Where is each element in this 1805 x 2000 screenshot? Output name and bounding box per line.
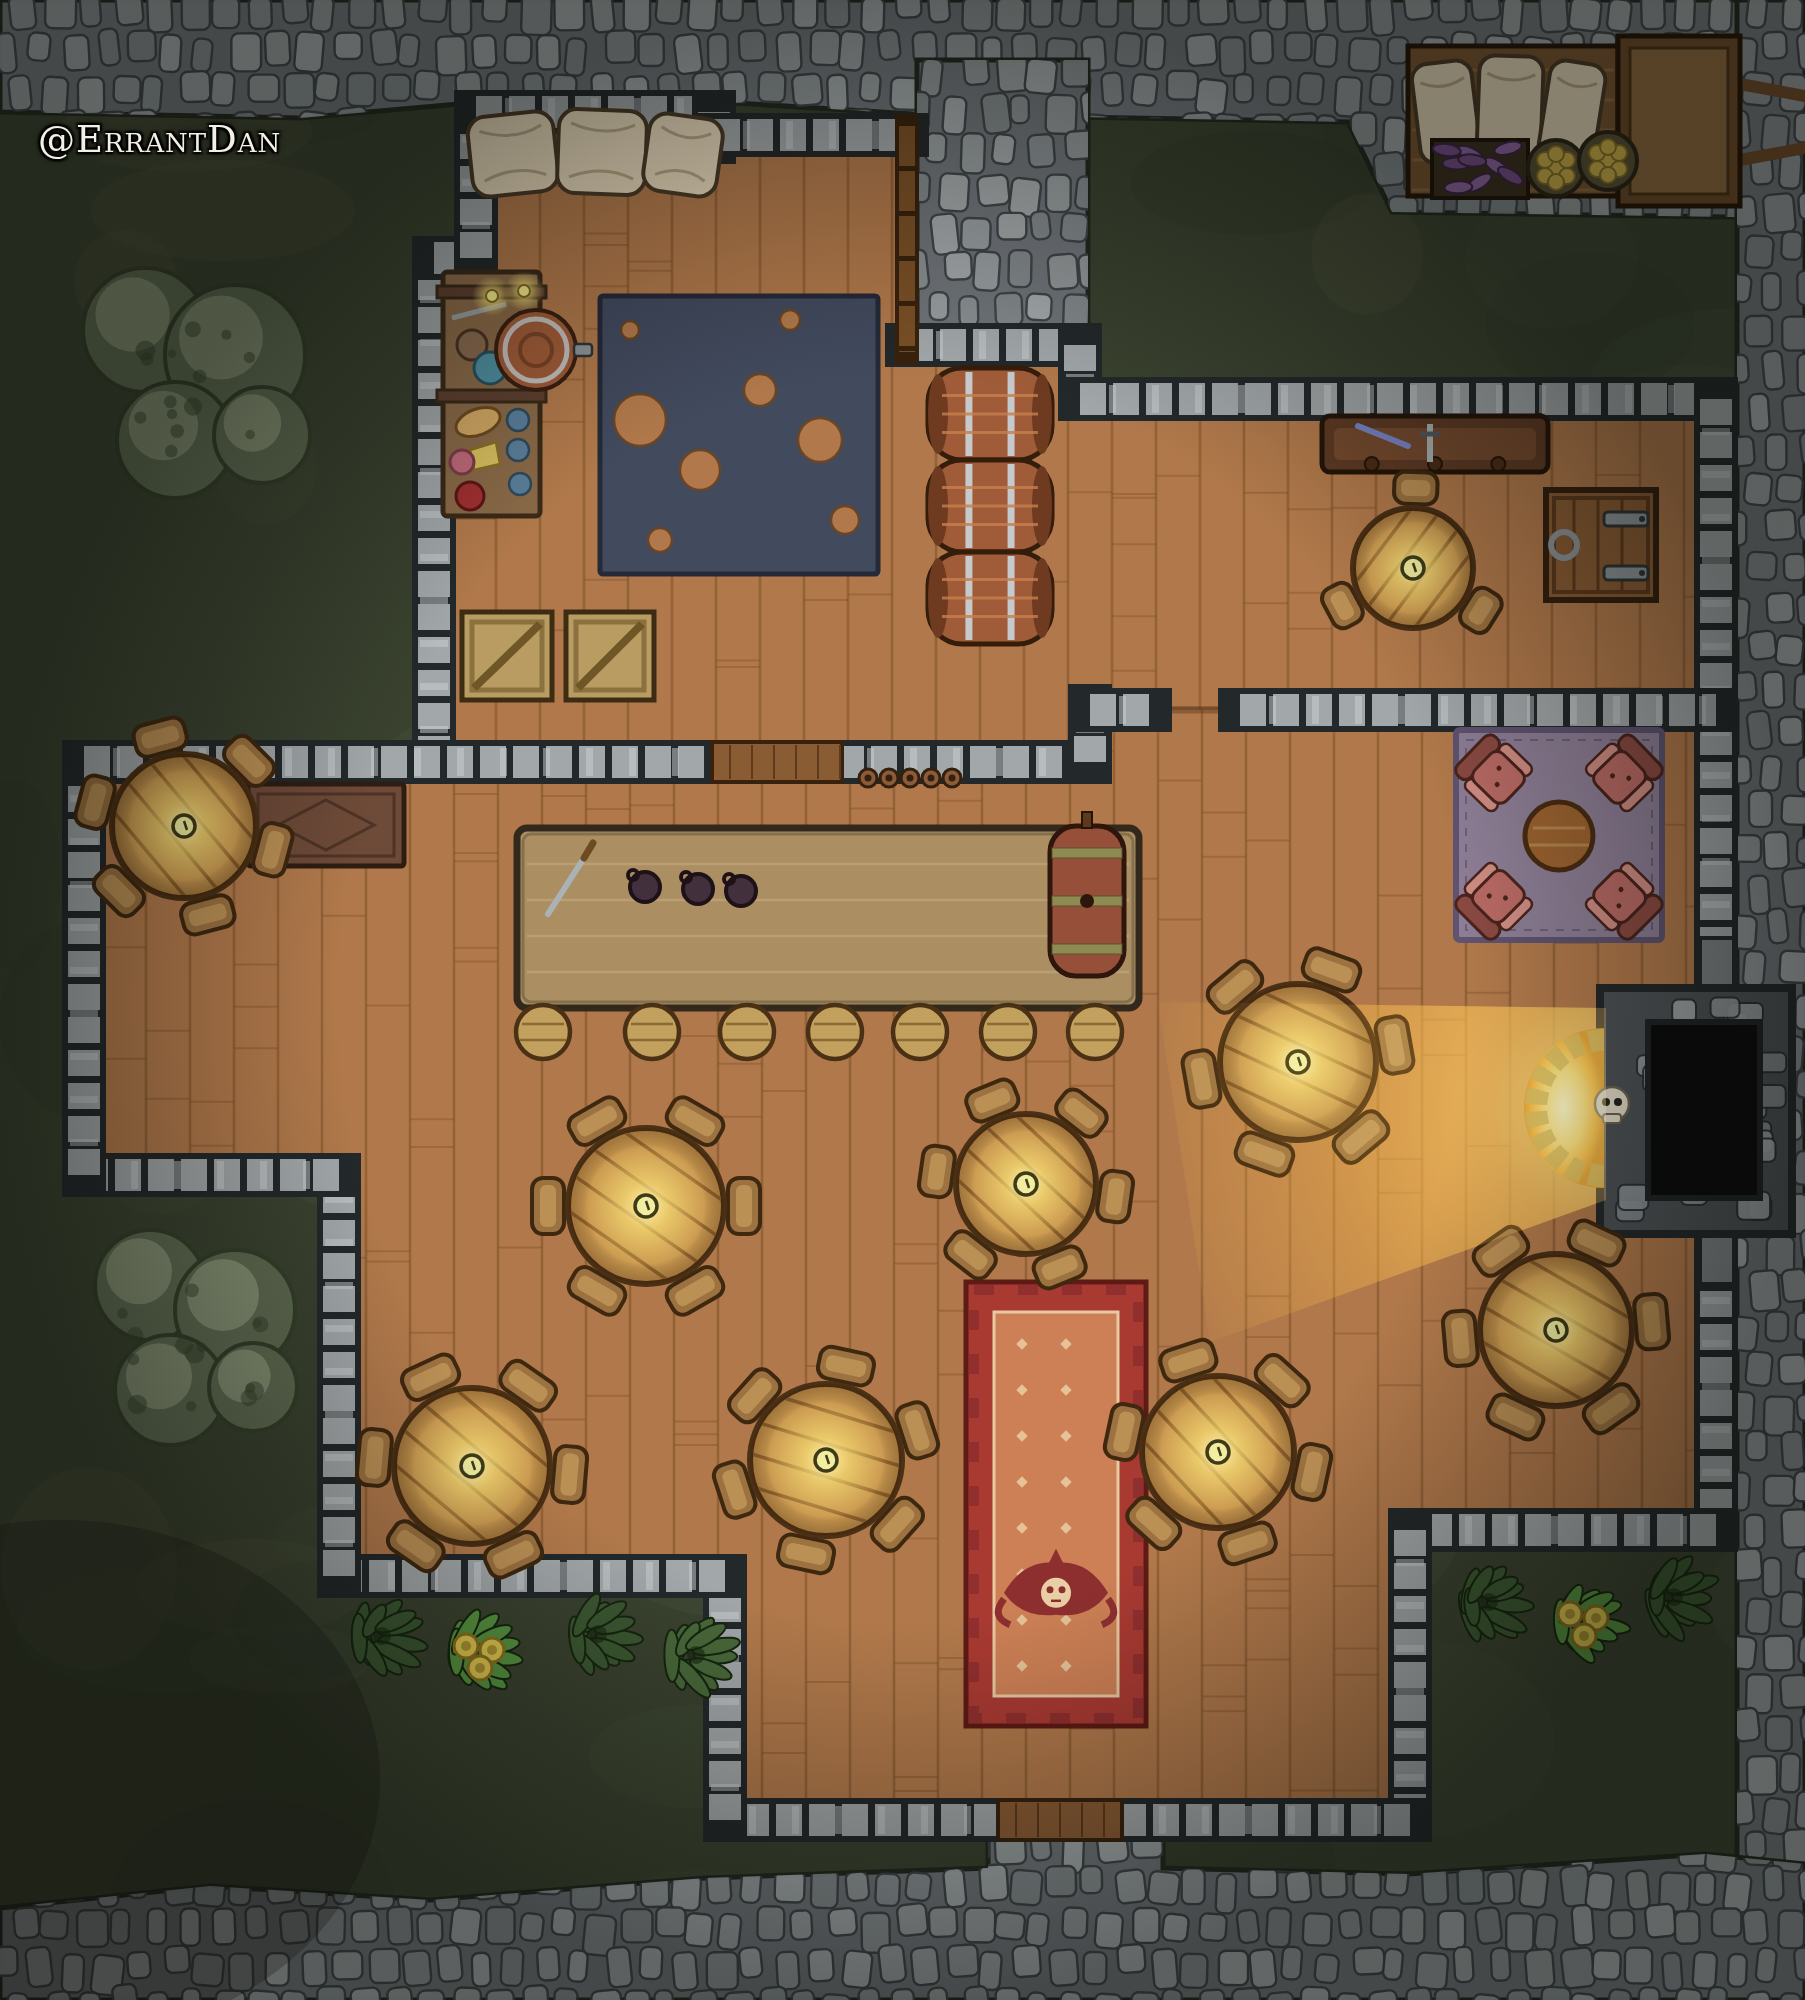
hanging-mug (922, 769, 940, 787)
cobble (1297, 72, 1324, 105)
cobble (1606, 0, 1632, 32)
cobble (930, 213, 960, 256)
cobble (1675, 1911, 1700, 1944)
cobble (1762, 350, 1785, 390)
cobble (1780, 1591, 1804, 1627)
cobble (1219, 1951, 1248, 1986)
cobble (98, 28, 121, 66)
cobble (1723, 1872, 1753, 1913)
table-chair (1633, 1293, 1670, 1350)
cobble (996, 0, 1026, 31)
cobble (1115, 32, 1142, 67)
stacked-keg (928, 552, 1052, 644)
cobble (738, 1947, 763, 1979)
cobble (1746, 1431, 1766, 1460)
bar-stool (625, 1005, 679, 1059)
cobble (1592, 1950, 1621, 1980)
cobble (1539, 0, 1569, 33)
stacked-plate (507, 439, 529, 461)
cobble (959, 296, 978, 326)
cobble (418, 0, 448, 22)
cobble (1782, 394, 1805, 432)
cobble (554, 0, 584, 30)
cobble (1709, 0, 1733, 32)
cobble (1766, 1716, 1792, 1751)
cobble (1762, 273, 1781, 310)
cobble (79, 0, 101, 27)
cobble (842, 1950, 873, 1989)
cobble (1336, 0, 1368, 32)
cobble (991, 133, 1016, 165)
cobble (436, 1944, 463, 1982)
cobble (861, 0, 885, 33)
cobble (811, 1869, 838, 1908)
cobble (472, 1953, 491, 1987)
cobble (537, 1947, 560, 1981)
cobble (1249, 1949, 1277, 1989)
cobble (1534, 1914, 1558, 1951)
cobble (793, 0, 817, 28)
cobble (1180, 1954, 1208, 1989)
cobble (284, 73, 314, 108)
candle (486, 290, 498, 302)
cobble (1182, 1868, 1205, 1904)
cobble (472, 35, 497, 69)
cobble (1388, 37, 1409, 63)
cobble (1169, 0, 1189, 26)
cobble (1133, 1908, 1159, 1943)
cobble (1609, 1910, 1635, 1939)
table-candle (1015, 1173, 1037, 1195)
table-candle (815, 1449, 837, 1471)
cobble (1147, 1870, 1180, 1905)
cobble (977, 174, 1010, 206)
keg-bung (1080, 894, 1094, 908)
cobble (1080, 1866, 1102, 1893)
table-candle (461, 1455, 483, 1477)
cobble (1797, 270, 1805, 305)
cobble (1797, 838, 1805, 865)
cobble (590, 0, 615, 33)
cobble (944, 252, 972, 281)
cobble (1232, 1987, 1262, 2000)
stacked-plate (509, 473, 531, 495)
cobble (758, 72, 785, 103)
cobble (332, 1951, 362, 1980)
cobble (1167, 71, 1198, 100)
cobble (1369, 74, 1393, 106)
cobble (624, 0, 651, 32)
cobble (1776, 474, 1804, 503)
cobble (282, 0, 309, 24)
cobble (417, 1913, 443, 1944)
cobble (996, 1988, 1020, 2000)
cobble (776, 1951, 800, 1989)
cobble (1049, 1949, 1079, 1986)
bush-highlight (179, 296, 263, 380)
cobble (523, 1985, 549, 2000)
cobble (978, 1951, 1002, 1990)
hearth-stone (1711, 997, 1740, 1017)
cobble (1540, 1987, 1570, 2000)
weapon-rack (1322, 416, 1548, 472)
cobble (1045, 1866, 1076, 1897)
counter-mug (630, 872, 660, 902)
stacked-keg (928, 460, 1052, 552)
cobble (1747, 1756, 1778, 1795)
cobble (1795, 1550, 1805, 1580)
cobble (961, 218, 991, 251)
cobble (370, 1948, 400, 1983)
cobble (265, 30, 291, 66)
cobble (1415, 1952, 1448, 1990)
cobble (1383, 117, 1407, 156)
cobble (249, 0, 272, 29)
cobble (1763, 1558, 1781, 1597)
cobble (1780, 1753, 1801, 1792)
cobble (1519, 1868, 1549, 1908)
cobble (310, 0, 334, 32)
cobble (1749, 1270, 1781, 1312)
cobble (1199, 1913, 1227, 1942)
cobble (27, 32, 51, 62)
candle (518, 285, 530, 297)
cobble (622, 1909, 653, 1942)
cobble (1008, 250, 1031, 287)
cobble (1045, 95, 1076, 135)
cobble (995, 293, 1023, 326)
cobble (1644, 1903, 1676, 1938)
spigot (574, 344, 592, 356)
cobble (1487, 1871, 1514, 1904)
cobble (1764, 1396, 1795, 1436)
cobble (1798, 191, 1805, 220)
cobble (1438, 0, 1466, 22)
cobble (0, 32, 17, 73)
cobble (1568, 0, 1602, 32)
cobble (1281, 1946, 1303, 1980)
cobble (453, 1987, 481, 2000)
cobble (1782, 867, 1805, 908)
table-candle (173, 815, 195, 837)
cobble (838, 31, 865, 71)
cobble (1762, 1797, 1791, 1835)
cobble (1765, 509, 1797, 541)
keg-tap (1082, 812, 1092, 828)
cobble (113, 76, 140, 103)
cobble (8, 75, 32, 112)
stacked-keg (928, 368, 1052, 460)
cobble (845, 1871, 870, 1902)
cobble (979, 1864, 1009, 1901)
hanging-mug (859, 769, 877, 787)
cobble (1491, 1948, 1511, 1981)
cobble (656, 1907, 686, 1936)
cobble (1030, 211, 1052, 241)
cobble (41, 76, 68, 116)
cobble (191, 38, 214, 73)
cobble (1782, 316, 1805, 350)
cobble (1779, 950, 1805, 983)
cobble (1305, 0, 1328, 32)
table-candle (1207, 1441, 1229, 1463)
cobble (625, 1990, 650, 2000)
cobble (1795, 995, 1805, 1030)
cobble (859, 72, 881, 102)
cobble (1094, 1993, 1122, 2000)
cobble (418, 1990, 445, 2000)
cobble (1314, 34, 1338, 67)
cobble (1796, 1393, 1805, 1422)
cobble (790, 1910, 813, 1940)
cobble (564, 38, 587, 77)
fruit (1600, 167, 1616, 183)
cobble (997, 213, 1026, 240)
bar-stool (893, 1005, 947, 1059)
cobble (486, 1989, 515, 2000)
wooden-crate (566, 612, 654, 700)
counter-mug (683, 874, 713, 904)
cobble (1250, 30, 1273, 63)
cobble (1767, 908, 1789, 944)
shelf-board (437, 390, 546, 402)
cobble (1766, 1311, 1789, 1341)
cobble (1746, 710, 1773, 750)
cobble (757, 1906, 784, 1940)
cobble (1185, 34, 1217, 67)
cobble (690, 1989, 720, 2000)
cobble (436, 36, 467, 76)
cobble (655, 0, 683, 24)
fruit (1548, 174, 1564, 190)
table-candle (1402, 557, 1424, 579)
cobble (1438, 1911, 1465, 1950)
cobble (792, 73, 823, 106)
cobble (875, 1873, 900, 1906)
cobble (962, 0, 992, 31)
cobble (1314, 1954, 1339, 1984)
table-chair (1394, 471, 1438, 504)
cobble (1101, 72, 1123, 106)
wooden-crate (462, 612, 552, 700)
cobble (1766, 434, 1787, 470)
cobble (1626, 1870, 1651, 1910)
bar-stool (981, 1005, 1035, 1059)
cobble (994, 1911, 1026, 1940)
kitchen-food-shelf (437, 271, 546, 516)
cobble (1060, 212, 1088, 242)
cobble (1733, 1707, 1760, 1742)
cobble (1010, 95, 1029, 123)
rug-hole (680, 450, 720, 490)
table-chair (918, 1144, 957, 1198)
cobble (78, 77, 104, 114)
cobble (1778, 1910, 1804, 1948)
cobble (929, 1907, 958, 1937)
cobble (1047, 253, 1078, 289)
cobble (717, 1913, 742, 1950)
cobble (115, 0, 144, 26)
cobble (1373, 152, 1406, 187)
cobble (1338, 1909, 1362, 1939)
cobble (1749, 791, 1772, 827)
bar-counter (517, 828, 1139, 1008)
rug-hole (798, 418, 842, 462)
cobble (1560, 1947, 1595, 1989)
fruit-basket (1528, 140, 1584, 196)
cobble (1746, 552, 1777, 581)
carpet-field (994, 1312, 1118, 1696)
cobble (1692, 1952, 1717, 1990)
cobble (654, 1990, 673, 2000)
cobble (335, 33, 362, 59)
cobble (1334, 76, 1362, 117)
table-candle (635, 1195, 657, 1217)
cobble (639, 1947, 662, 1980)
cobble (567, 1950, 588, 1982)
cobble (961, 133, 985, 174)
pink-plate (450, 450, 474, 474)
cobble (351, 1911, 378, 1943)
fruit (1600, 139, 1616, 155)
cobble (687, 0, 717, 31)
cobble (606, 30, 636, 63)
keg-hoop (1052, 944, 1122, 954)
cobble (721, 0, 743, 21)
cobble (1382, 1948, 1403, 1980)
counter-mug (726, 876, 756, 906)
cobble (1763, 832, 1789, 870)
cobble (942, 96, 967, 135)
cobble (1501, 0, 1524, 36)
cobble (1062, 56, 1091, 87)
bush-highlight (224, 394, 282, 452)
cobble (1249, 1868, 1278, 1898)
hanging-mug (943, 769, 961, 787)
cobble (910, 1946, 939, 1985)
cobble (1353, 1871, 1380, 1898)
rug-hole (648, 528, 672, 552)
cobble (1285, 1870, 1312, 1903)
cobble (1026, 293, 1052, 321)
cobble (1010, 1869, 1043, 1905)
cobble (182, 0, 211, 30)
cobble (1507, 1990, 1531, 2000)
cobble (1024, 58, 1058, 95)
cobble (1638, 1987, 1659, 2000)
cobble (1215, 1873, 1236, 1914)
cobble (1046, 175, 1071, 212)
cobble (1748, 875, 1770, 915)
grain-sack (557, 108, 648, 195)
cobble (1195, 78, 1228, 116)
cobble (1674, 0, 1695, 31)
entrance-threshold (998, 1800, 1122, 1840)
cobble (1794, 1946, 1805, 1980)
cobble (537, 35, 560, 70)
cobble (1745, 1351, 1773, 1387)
cobble (1059, 0, 1082, 27)
cobble (1779, 716, 1804, 745)
cobble (672, 1951, 699, 1991)
cobble (1780, 1993, 1801, 2000)
cobble (249, 75, 280, 102)
cobble (1083, 1952, 1106, 1984)
cobble (1336, 1993, 1361, 2000)
cobble (591, 1989, 623, 2000)
cobble (673, 33, 703, 74)
cobble (141, 76, 163, 114)
table-chair (728, 1178, 760, 1234)
cobble (212, 0, 239, 28)
cobble (684, 1913, 713, 1948)
cobble (1266, 1908, 1291, 1948)
cobble (1471, 0, 1501, 21)
grass-mottle (90, 160, 355, 261)
table-chair (1096, 1169, 1135, 1223)
cobble (1745, 1831, 1766, 1859)
cobble (1781, 1268, 1805, 1302)
stacked-plate (507, 409, 529, 431)
cobble (1285, 33, 1311, 61)
grain-sack (466, 110, 560, 199)
hearth-stone (1618, 1185, 1648, 1210)
cobble (1694, 1872, 1715, 1905)
cobble (1781, 1431, 1805, 1470)
cobble (1094, 1912, 1123, 1949)
cobble (827, 74, 848, 112)
cobble (1797, 757, 1805, 793)
cobble (1369, 0, 1395, 36)
cobble (350, 1987, 382, 2000)
cobble (1303, 1913, 1332, 1946)
cobble (1403, 0, 1433, 20)
cobble (877, 29, 901, 60)
cobble (1030, 0, 1052, 27)
cobble (1585, 1872, 1614, 1911)
bar-stool (1068, 1005, 1122, 1059)
cobble (1234, 74, 1253, 102)
torn-navy-rug (600, 296, 878, 574)
cobble (1131, 1992, 1159, 2000)
table-chair (1442, 1310, 1479, 1367)
cobble (1781, 795, 1805, 825)
cobble (1268, 0, 1287, 29)
cobble (294, 31, 325, 73)
rug-hole (780, 310, 800, 330)
cobble (519, 1912, 544, 1941)
cobble (1800, 910, 1805, 951)
cobble (1198, 0, 1229, 25)
cobble (1745, 235, 1774, 268)
cobble (521, 0, 552, 35)
cobble (1267, 76, 1290, 105)
cobble (314, 72, 339, 101)
cobble (1233, 0, 1261, 23)
berry-bowl (456, 482, 484, 510)
cobble (1764, 1476, 1795, 1506)
rack-scallop (1491, 457, 1505, 471)
cobble (1775, 635, 1804, 667)
cobble (1796, 1071, 1805, 1099)
rug-hole (614, 394, 666, 446)
cobble (382, 0, 406, 29)
cobble (64, 35, 90, 71)
cobble (1797, 354, 1805, 394)
cobble (486, 1907, 515, 1944)
cobble (947, 1944, 979, 1977)
cobble (760, 1986, 790, 2000)
